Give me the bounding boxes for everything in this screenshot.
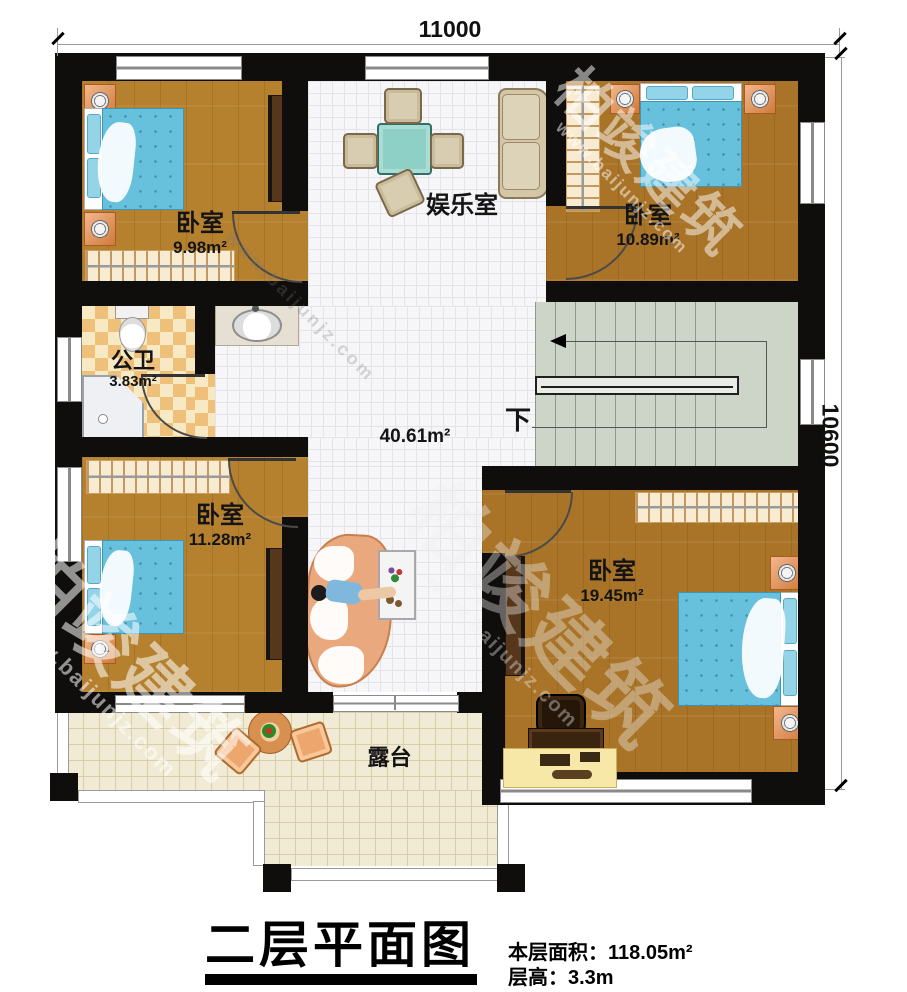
room-label-entertainment: 娱乐室 xyxy=(402,192,522,220)
sink-basin xyxy=(232,309,282,342)
chair xyxy=(343,133,378,169)
bed-pillow xyxy=(87,546,101,584)
floor-plan-page: 卧室 9.98m² 娱乐室 卧室 10.89m² 公卫 3.83m² 40.61… xyxy=(0,0,907,992)
floor-height-info: 层高：3.3m xyxy=(508,961,614,990)
bed-pillow xyxy=(692,86,734,100)
room-area: 11.28m² xyxy=(160,530,280,550)
floor-height-label: 层高： xyxy=(508,967,568,989)
wall xyxy=(55,281,308,306)
room-area: 19.45m² xyxy=(552,586,672,606)
shower-drain xyxy=(98,414,108,424)
stairs-guide-line xyxy=(566,341,767,342)
door-gap-bedroom-br xyxy=(482,490,505,553)
floor-height-value: 3.3m xyxy=(568,967,614,989)
room-name: 卧室 xyxy=(140,210,260,238)
window xyxy=(800,122,825,204)
sofa-cushion xyxy=(310,598,348,640)
door-leaf xyxy=(505,490,571,493)
wall xyxy=(546,53,566,206)
room-label-terrace: 露台 xyxy=(352,745,427,770)
sofa-cushion xyxy=(502,142,540,190)
bed-pillow xyxy=(783,650,797,696)
room-label-bedroom-tl: 卧室 9.98m² xyxy=(140,210,260,257)
stairs-handrail xyxy=(535,376,739,395)
door-gap-bedroom-tr xyxy=(546,206,566,281)
room-label-bedroom-br: 卧室 19.45m² xyxy=(552,558,672,605)
window xyxy=(57,337,82,402)
wall xyxy=(282,53,308,211)
room-label-bedroom-bl: 卧室 11.28m² xyxy=(160,502,280,549)
dimension-right: 10600 xyxy=(817,404,844,464)
terrace-corner-post xyxy=(497,864,525,892)
wall xyxy=(482,553,505,772)
game-table xyxy=(377,123,432,175)
dimension-tick xyxy=(833,32,846,45)
window xyxy=(115,695,245,713)
stairs-direction-arrow xyxy=(550,334,566,348)
window xyxy=(57,467,82,562)
terrace-parapet-right xyxy=(497,803,509,866)
dimension-top: 11000 xyxy=(406,16,494,43)
stairs-guide-line xyxy=(532,427,767,428)
wall xyxy=(55,437,308,457)
room-name: 卧室 xyxy=(552,558,672,586)
nightstand xyxy=(84,212,116,246)
window xyxy=(116,56,242,80)
terrace-corner-post xyxy=(263,864,291,892)
chair xyxy=(430,133,464,169)
room-name: 公卫 xyxy=(93,348,173,373)
stairs-landing xyxy=(730,302,798,466)
sink-faucet xyxy=(252,305,259,312)
terrace-corner-post xyxy=(50,773,78,801)
nightstand xyxy=(610,84,640,114)
terrace-parapet-step xyxy=(253,801,265,866)
room-name: 娱乐室 xyxy=(402,192,522,220)
wardrobe xyxy=(86,460,230,494)
floor-area-value: 118.05m² xyxy=(608,942,693,964)
hall-area-label: 40.61m² xyxy=(355,426,475,448)
page-title: 二层平面图 xyxy=(205,905,475,977)
sliding-door xyxy=(333,695,459,712)
room-area: 3.83m² xyxy=(93,373,173,390)
window xyxy=(365,56,489,80)
wall xyxy=(195,306,215,374)
dressing-table-items xyxy=(580,752,600,762)
room-name: 卧室 xyxy=(588,202,708,230)
nightstand xyxy=(84,634,116,664)
down-text: 下 xyxy=(498,406,538,436)
wardrobe xyxy=(635,492,810,523)
cup xyxy=(395,600,402,607)
terrace-parapet-bottom-left xyxy=(78,790,265,803)
room-area: 40.61m² xyxy=(355,426,475,448)
terrace-parapet-bottom xyxy=(291,868,499,881)
sliding-door-divider xyxy=(394,695,396,710)
tv-cabinet xyxy=(505,556,525,676)
room-name: 卧室 xyxy=(160,502,280,530)
comb xyxy=(552,770,592,779)
wall xyxy=(546,281,825,302)
wardrobe xyxy=(566,85,600,212)
floor-terrace-lower xyxy=(263,790,497,866)
bed-pillow xyxy=(646,86,688,100)
table-flower xyxy=(262,724,276,738)
sofa-cushion xyxy=(318,646,364,684)
flower-vase xyxy=(383,562,407,586)
sofa-cushion xyxy=(314,546,354,582)
terrace-parapet-left xyxy=(57,712,69,776)
room-area: 10.89m² xyxy=(588,230,708,250)
nightstand xyxy=(744,84,776,114)
room-label-bathroom: 公卫 3.83m² xyxy=(93,348,173,391)
dimension-line-top xyxy=(58,44,840,45)
stairs-guide-line xyxy=(766,341,767,428)
chair xyxy=(384,88,422,124)
wall xyxy=(282,517,308,692)
title-underline xyxy=(205,974,477,985)
dressing-table-items xyxy=(540,754,570,766)
sofa-cushion xyxy=(502,94,540,140)
room-label-bedroom-tr: 卧室 10.89m² xyxy=(588,202,708,249)
dimension-extension xyxy=(57,28,58,56)
wall xyxy=(482,466,825,490)
stairs-down-label: 下 xyxy=(498,406,538,436)
door-leaf xyxy=(228,458,296,461)
room-area: 9.98m² xyxy=(140,238,260,258)
room-name: 露台 xyxy=(352,745,427,770)
